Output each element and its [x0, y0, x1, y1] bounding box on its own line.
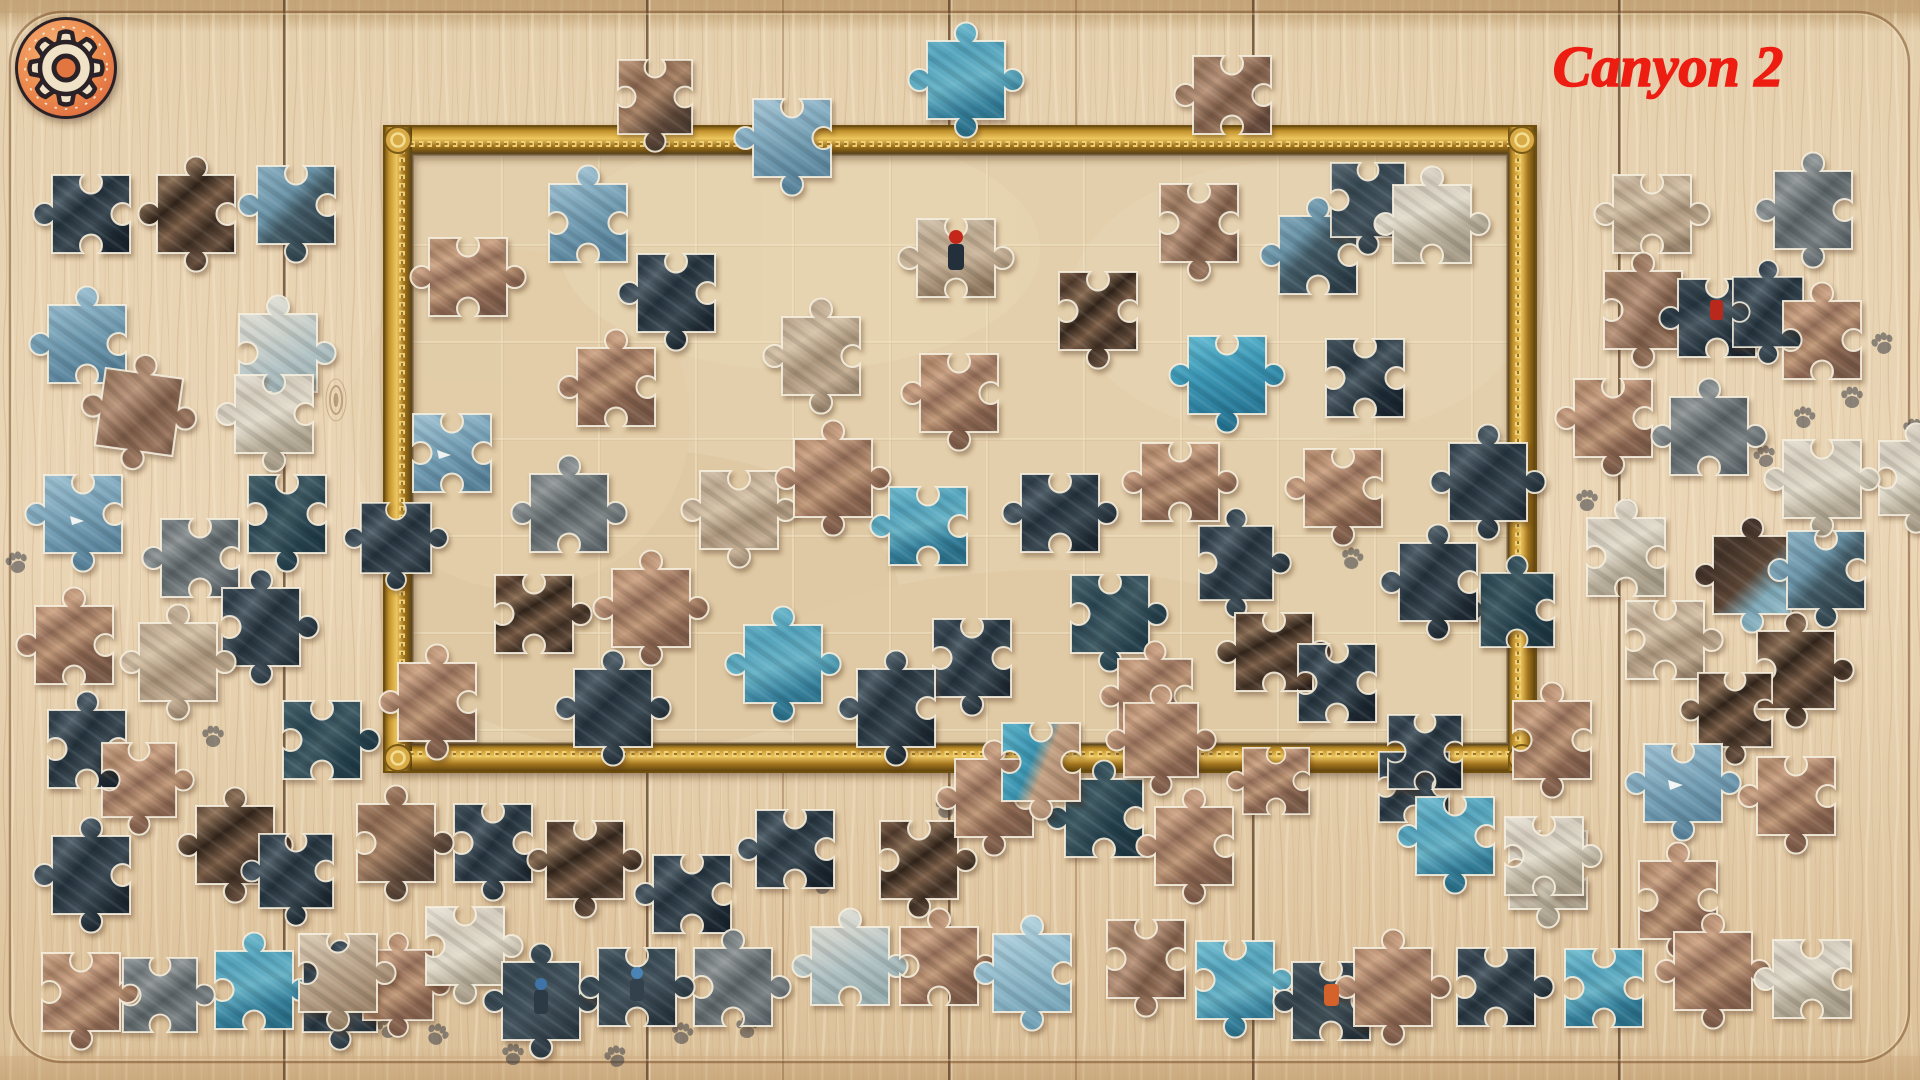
- svg-text:Canyon 2: Canyon 2: [1553, 34, 1783, 99]
